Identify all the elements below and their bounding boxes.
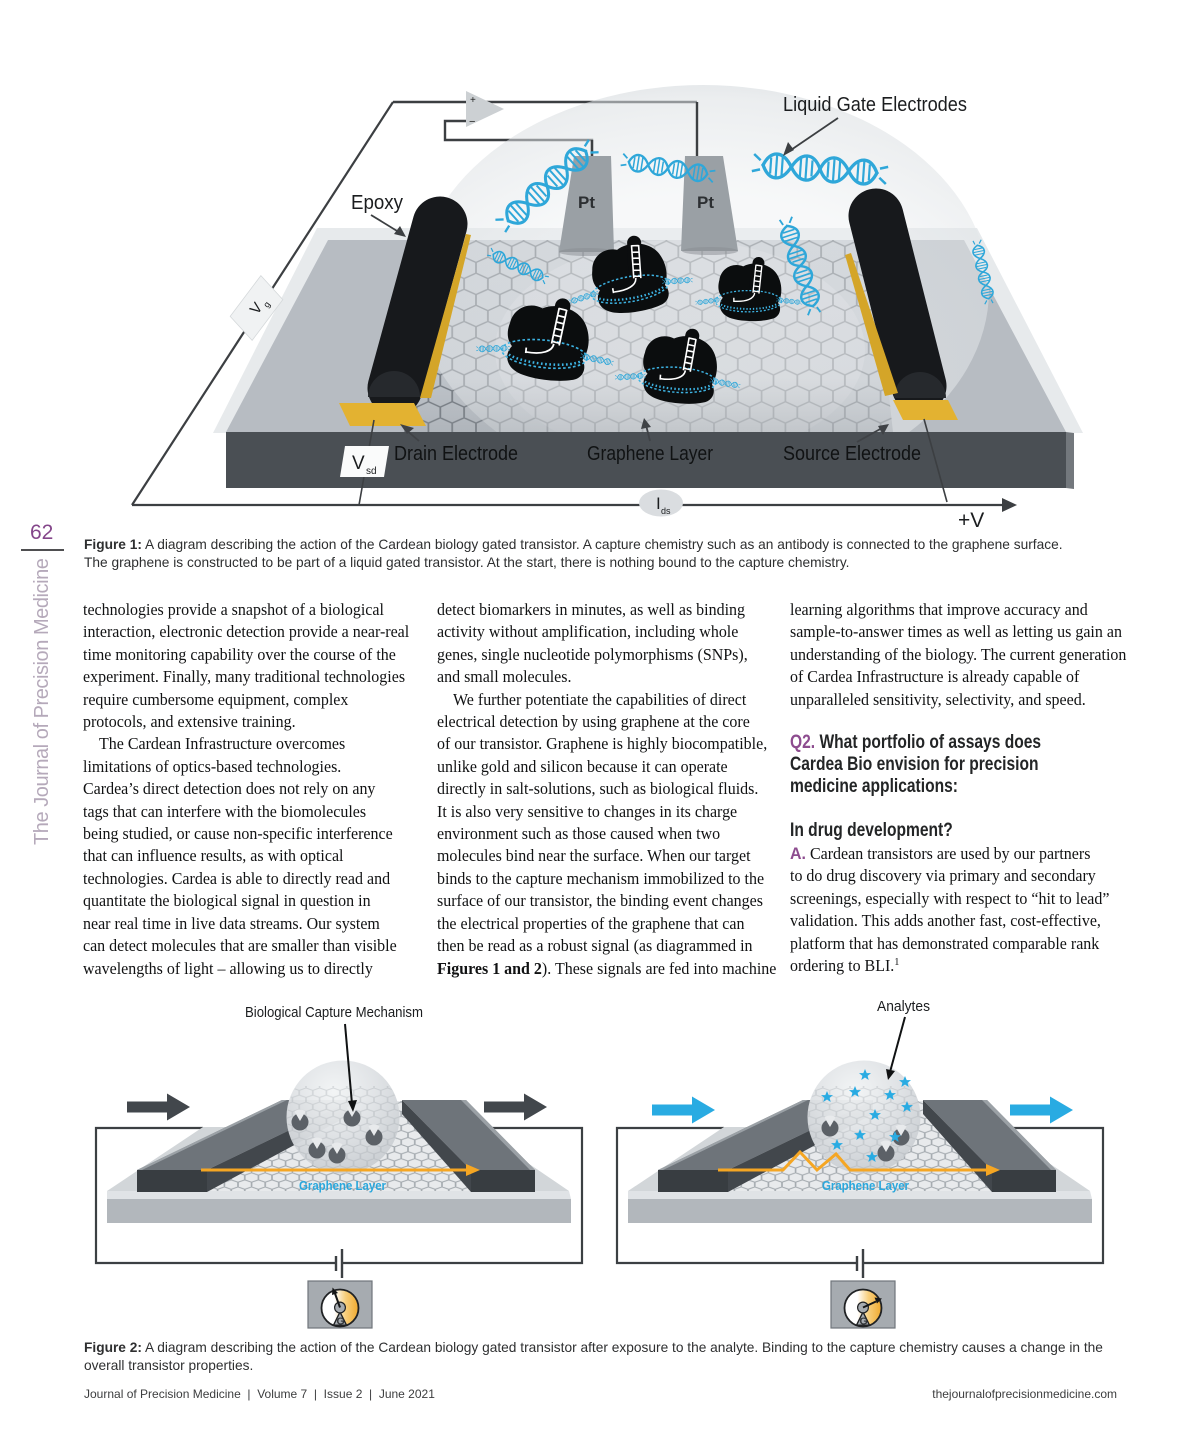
svg-text:−: −: [469, 116, 475, 128]
svg-text:Drain Electrode: Drain Electrode: [394, 443, 518, 465]
svg-text:+V: +V: [958, 509, 984, 532]
svg-text:Biological Capture Mechanism: Biological Capture Mechanism: [245, 1004, 423, 1021]
svg-text:Graphene Layer: Graphene Layer: [822, 1179, 909, 1193]
svg-text:sd: sd: [366, 466, 377, 477]
svg-text:V: V: [352, 453, 365, 474]
svg-text:Pt: Pt: [697, 193, 714, 212]
svg-text:Liquid Gate Electrodes: Liquid Gate Electrodes: [783, 94, 967, 116]
svg-text:+: +: [470, 95, 476, 106]
svg-text:Graphene Layer: Graphene Layer: [299, 1179, 386, 1193]
svg-text:Graphene Layer: Graphene Layer: [587, 443, 713, 465]
svg-text:Pt: Pt: [578, 193, 595, 212]
svg-text:ds: ds: [661, 506, 671, 516]
svg-text:Analytes: Analytes: [877, 998, 930, 1015]
svg-text:Source Electrode: Source Electrode: [783, 443, 921, 465]
svg-text:Epoxy: Epoxy: [351, 192, 403, 214]
